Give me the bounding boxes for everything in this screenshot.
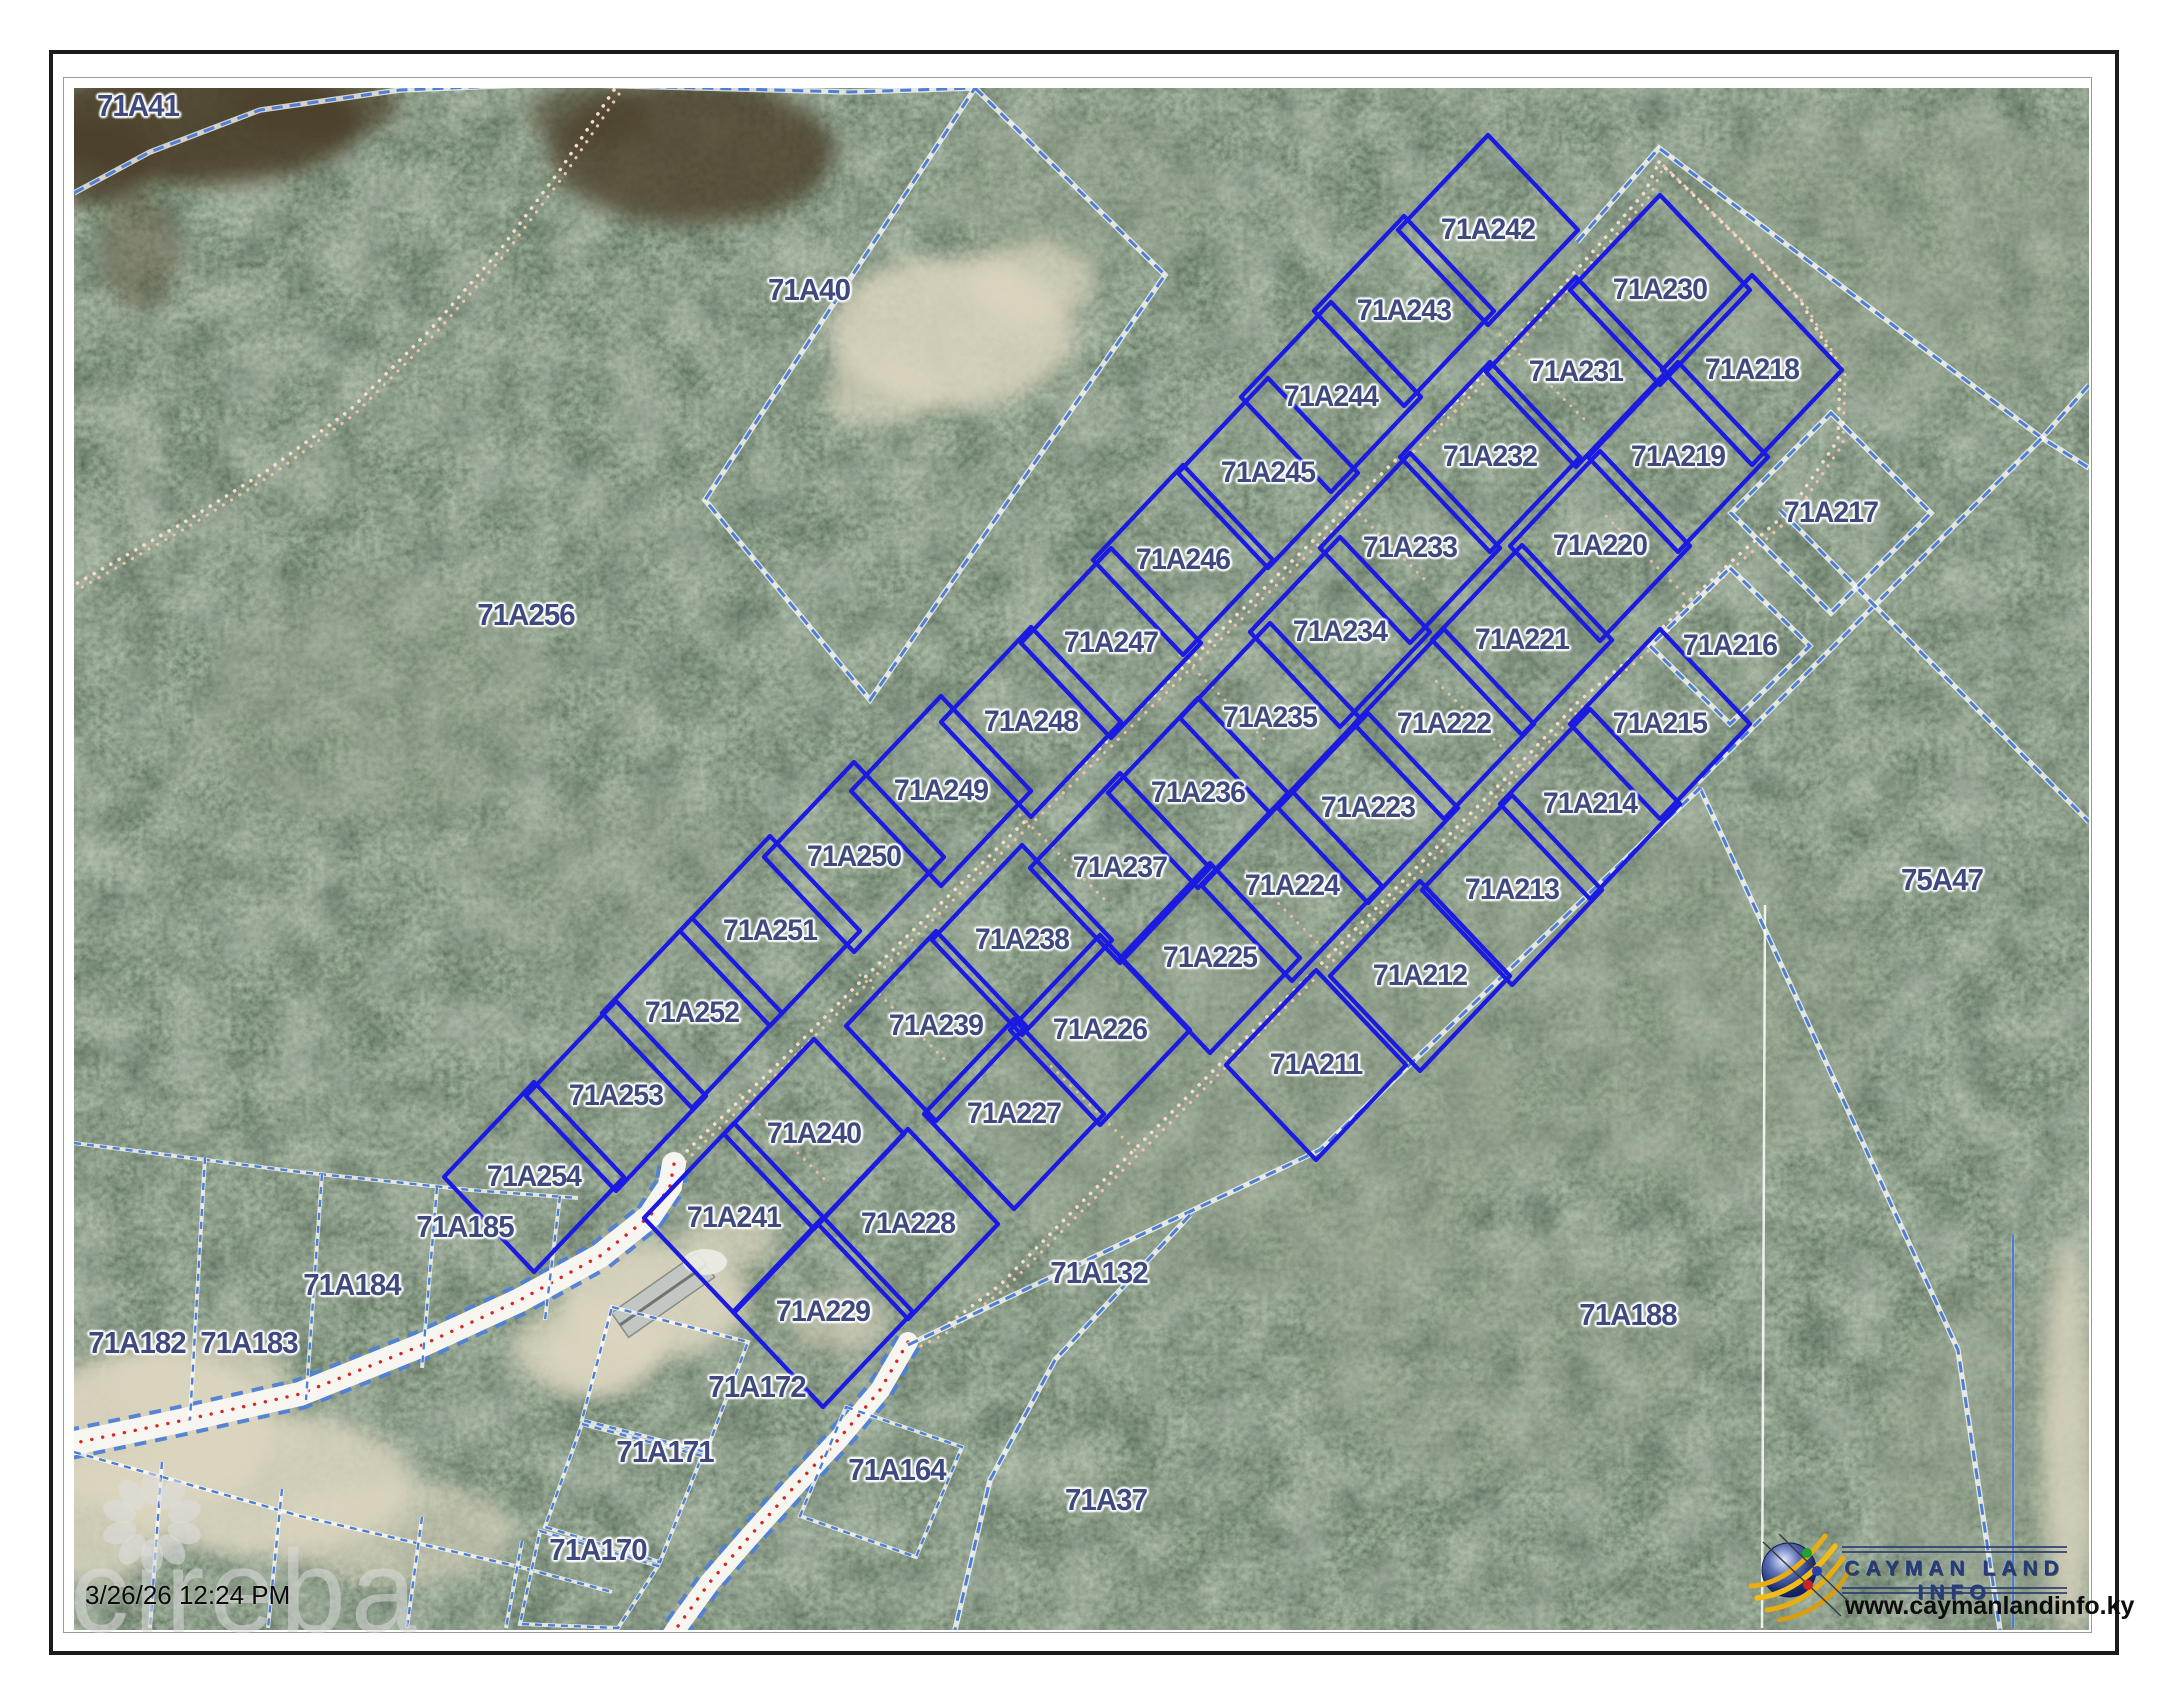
map-canvas: 71A24271A24371A24471A24571A24671A24771A2… xyxy=(74,88,2089,1630)
logo-rule xyxy=(1842,1551,2067,1553)
cayman-land-info-logo: CAYMAN LAND INFO www.caymanlandinfo.ky xyxy=(1745,1524,2090,1634)
map-page: 71A24271A24371A24471A24571A24671A24771A2… xyxy=(0,0,2168,1700)
timestamp: 3/26/26 12:24 PM xyxy=(85,1580,290,1611)
logo-rule xyxy=(1842,1587,2067,1589)
aerial-map-image xyxy=(74,88,2089,1630)
logo-rule xyxy=(1842,1546,2067,1548)
logo-url: www.caymanlandinfo.ky xyxy=(1845,1592,2134,1621)
